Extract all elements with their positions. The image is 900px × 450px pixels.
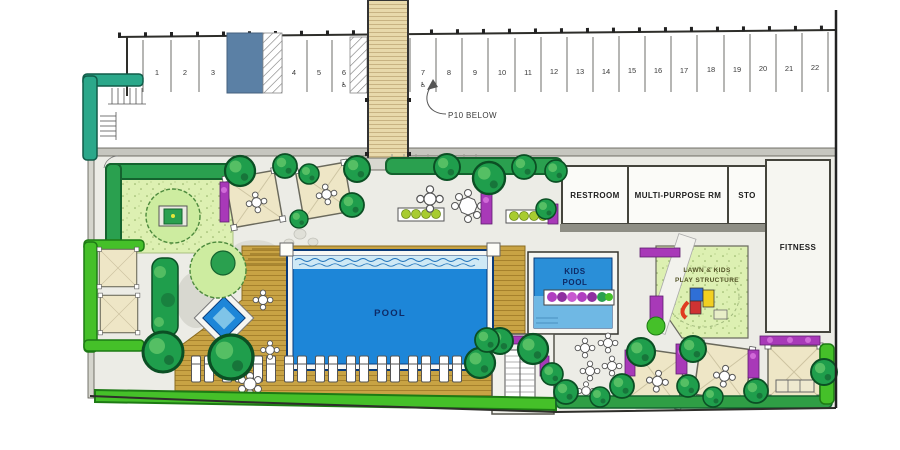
pool: POOL [280,243,500,370]
stall-number: 16 [654,66,662,75]
accessible-icon: ♿ [420,81,426,89]
multipurpose-label: MULTI-PURPOSE RM [635,191,722,200]
stall-number: 19 [733,65,741,74]
pool-post [280,243,293,256]
stall-number: 13 [576,67,584,76]
kids-pool-label-1: KIDS [564,267,586,276]
stall-number: 11 [524,68,532,77]
site-plan-drawing: 1 2 3 4 5 6 7 8 9 10 11 12 13 14 15 16 1… [0,0,900,450]
restroom-label: RESTROOM [570,191,619,200]
flower-planter [640,248,680,257]
stall-number: 17 [680,66,688,75]
stall-number: 9 [473,68,477,77]
fitness-label: FITNESS [780,243,817,252]
stall-number: 6 [342,68,346,77]
stall-number: 14 [602,67,610,76]
stall-number: 5 [317,68,321,77]
storage-label: STO [738,191,756,200]
stall-number: 8 [447,68,451,77]
kids-pool: KIDS POOL [528,252,618,334]
lawn-play-area: LAWN & KIDS PLAY STRUCTURE [640,234,748,338]
flower-planter [650,296,663,320]
kids-pool-label-2: POOL [562,278,587,287]
stall-number: 10 [498,68,506,77]
stall-number: 22 [811,63,819,72]
stall-number: 18 [707,65,715,74]
stall-number: 21 [785,64,793,73]
ramp [364,0,412,170]
stall-number: 1 [155,68,159,77]
pool-post [487,243,500,256]
p10-below-label: P10 BELOW [448,111,497,120]
site-plan: 1 2 3 4 5 6 7 8 9 10 11 12 13 14 15 16 1… [0,0,900,450]
accessible-icon: ♿ [341,81,347,89]
stall-number: 7 [421,68,425,77]
rooms-wall [560,224,766,232]
stall-number: 12 [550,67,558,76]
stall-dividers-right [410,32,828,92]
parking-wall [95,148,836,156]
hatched-area-2 [350,37,367,93]
stall-number: 4 [292,68,296,77]
stall-number: 3 [211,68,215,77]
lawn-label-2: PLAY STRUCTURE [675,277,739,284]
reserved-stall [227,33,263,93]
parking-garage: 1 2 3 4 5 6 7 8 9 10 11 12 13 14 15 16 1… [95,28,836,156]
stairs-lower [100,112,116,140]
hatched-area-1 [263,33,282,93]
pool-label: POOL [374,308,406,319]
stall-number: 2 [183,68,187,77]
stall-number: 20 [759,64,767,73]
stall-number: 15 [628,66,636,75]
lawn-label-1: LAWN & KIDS [683,267,731,274]
